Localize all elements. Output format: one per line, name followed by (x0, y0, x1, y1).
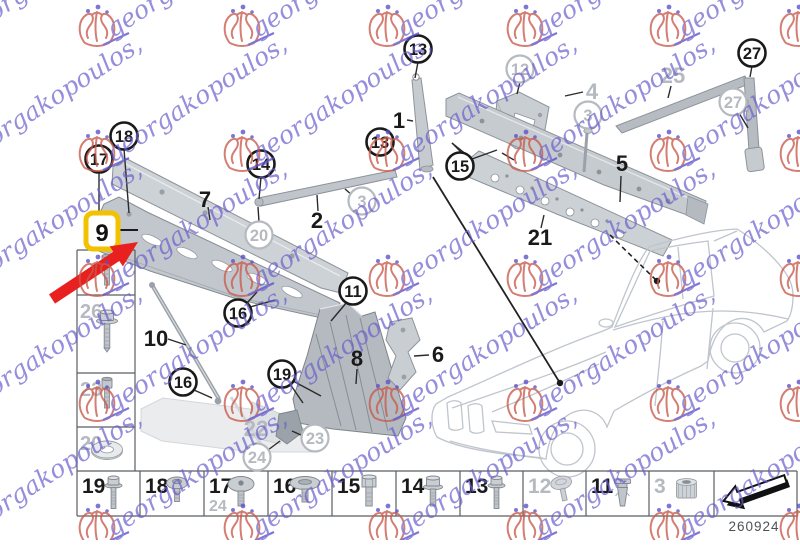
part-cell-16[interactable]: 16 (273, 475, 320, 502)
callout-27[interactable]: 27 (739, 40, 766, 67)
hex-bolt-icon (362, 475, 376, 506)
watermark-crest-icon: georgakopoulos, (651, 0, 800, 46)
part-label-6: 6 (432, 342, 444, 367)
callout-16[interactable]: 16 (170, 369, 197, 396)
watermark-crest-icon: georgakopoulos, (0, 403, 147, 540)
callout-27[interactable]: 27 (720, 89, 747, 116)
svg-text:18: 18 (145, 475, 169, 498)
part-cell-23[interactable]: 23 (80, 377, 112, 408)
callout-23[interactable]: 23 (302, 425, 329, 452)
watermark-text: georgakopoulos, (0, 279, 147, 418)
watermark-text: georgakopoulos, (245, 0, 437, 43)
svg-text:16: 16 (229, 305, 247, 323)
part-cell-17[interactable]: 1724 (209, 475, 254, 515)
callout-17[interactable]: 17 (86, 146, 113, 173)
watermark-text: georgakopoulos, (671, 279, 800, 418)
watermark-crest-icon: georgakopoulos, (80, 0, 293, 46)
washer-icon (92, 441, 123, 460)
part-cell-11[interactable]: 11 (591, 475, 631, 506)
callout-15[interactable]: 15 (447, 153, 474, 180)
part-label-2: 2 (311, 208, 323, 233)
watermark-crest-icon: georgakopoulos, (0, 0, 147, 46)
callout-20[interactable]: 20 (246, 222, 273, 249)
svg-text:14: 14 (252, 156, 271, 174)
svg-text:14: 14 (401, 475, 425, 498)
callout-13[interactable]: 13 (367, 129, 394, 156)
svg-text:19: 19 (82, 475, 105, 498)
callout-3[interactable]: 3 (349, 188, 376, 215)
svg-text:27: 27 (743, 45, 761, 63)
svg-text:16: 16 (174, 374, 192, 392)
part-label-5: 5 (616, 151, 628, 176)
side-panel-part8 (293, 303, 406, 436)
back-arrow-icon (724, 475, 791, 509)
watermark-text: georgakopoulos, (0, 403, 147, 540)
part-label-10: 10 (144, 326, 168, 351)
callout-12[interactable]: 12 (507, 56, 534, 83)
part-label-8: 8 (351, 346, 363, 371)
socket-bolt-icon (102, 377, 112, 408)
part-label-1: 1 (393, 108, 405, 133)
back-arrow-cell[interactable] (724, 475, 791, 509)
svg-text:13: 13 (409, 41, 427, 59)
part-label-4: 4 (586, 79, 599, 104)
mount-point-dot (654, 278, 660, 284)
part-label-21: 21 (528, 225, 552, 250)
button-head-screw-icon (550, 474, 576, 502)
svg-text:19: 19 (273, 366, 291, 384)
watermark-text: georgakopoulos, (100, 0, 292, 43)
watermark-text: georgakopoulos, (671, 154, 800, 293)
part-cell-26[interactable]: 26 (80, 301, 118, 352)
callout-3[interactable]: 3 (575, 102, 602, 129)
parts-diagram-page: 191817241615141312113262320 131314151718… (0, 0, 800, 540)
flange-bolt-icon (424, 476, 443, 506)
strut-part1 (412, 74, 433, 172)
car-outline (432, 229, 793, 477)
part-label-22: 22 (244, 416, 268, 441)
watermark-crest-icon: georgakopoulos, (781, 29, 800, 171)
bracket-part6 (386, 318, 420, 390)
svg-text:11: 11 (344, 283, 361, 301)
part-cell-15[interactable]: 15 (337, 475, 376, 506)
svg-text:24: 24 (248, 449, 267, 467)
mount-point-dot (557, 380, 563, 386)
svg-text:18: 18 (115, 128, 133, 146)
svg-text:23: 23 (306, 430, 324, 448)
highlight-label: 9 (95, 220, 108, 247)
watermark-crest-icon: georgakopoulos, (225, 0, 438, 46)
svg-text:12: 12 (511, 61, 529, 79)
callout-16[interactable]: 16 (225, 300, 252, 327)
svg-text:15: 15 (337, 475, 361, 498)
svg-text:3: 3 (654, 475, 666, 498)
crossbar-part25 (616, 76, 765, 172)
watermark-crest-icon: georgakopoulos, (651, 279, 800, 421)
svg-text:24: 24 (209, 498, 227, 515)
svg-text:12: 12 (528, 475, 551, 498)
svg-text:27: 27 (724, 94, 742, 112)
flange-bolt-long-icon (105, 476, 122, 509)
callout-19[interactable]: 19 (269, 361, 296, 388)
svg-text:23: 23 (80, 379, 102, 401)
part-cell-20[interactable]: 20 (80, 433, 123, 460)
part-cell-19[interactable]: 19 (82, 475, 122, 509)
watermark-crest-icon: georgakopoulos, (651, 154, 800, 296)
exploded-parts-diagram: 191817241615141312113262320 131314151718… (0, 0, 800, 540)
callout-18[interactable]: 18 (111, 123, 138, 150)
svg-text:3: 3 (357, 193, 366, 211)
svg-text:11: 11 (591, 475, 614, 498)
callout-24[interactable]: 24 (244, 444, 271, 471)
part-label-25: 25 (661, 63, 685, 88)
svg-text:3: 3 (583, 107, 592, 125)
svg-text:13: 13 (465, 475, 488, 498)
callout-13[interactable]: 13 (405, 36, 432, 63)
watermark-text: georgakopoulos, (528, 403, 720, 540)
callout-11[interactable]: 11 (340, 278, 367, 305)
watermark-crest-icon: georgakopoulos, (370, 0, 583, 46)
watermark-text: georgakopoulos, (390, 279, 582, 418)
watermark-crest-icon: georgakopoulos, (781, 154, 800, 296)
svg-text:17: 17 (90, 151, 108, 169)
part-cell-13[interactable]: 13 (465, 475, 505, 509)
expansion-rivet-icon (615, 479, 631, 506)
parts-layer (94, 74, 765, 452)
diagram-number: 260924 (728, 519, 779, 534)
svg-text:13: 13 (371, 134, 389, 152)
watermark-crest-icon: georgakopoulos, (508, 403, 721, 540)
svg-text:20: 20 (250, 227, 268, 245)
watermark-crest-icon: georgakopoulos, (508, 0, 721, 46)
callout-14[interactable]: 14 (248, 151, 275, 178)
watermark-crest-icon: georgakopoulos, (0, 279, 147, 421)
watermark-text: georgakopoulos, (671, 0, 800, 43)
washer-head-screw-icon (167, 477, 188, 502)
part-cell-14[interactable]: 14 (401, 475, 443, 506)
watermark-text: georgakopoulos, (0, 0, 147, 43)
svg-text:15: 15 (451, 158, 469, 176)
part-cell-18[interactable]: 18 (145, 475, 188, 502)
flange-bolt-long-icon (488, 476, 505, 509)
watermark-crest-icon: georgakopoulos, (781, 0, 800, 46)
watermark-crest-icon: georgakopoulos, (781, 279, 800, 421)
part-cell-3[interactable]: 3 (654, 475, 697, 498)
knurled-nut-icon (677, 479, 697, 499)
part-label-7: 7 (199, 187, 211, 212)
part-cell-12[interactable]: 12 (528, 474, 575, 502)
watermark-text: georgakopoulos, (528, 0, 720, 43)
